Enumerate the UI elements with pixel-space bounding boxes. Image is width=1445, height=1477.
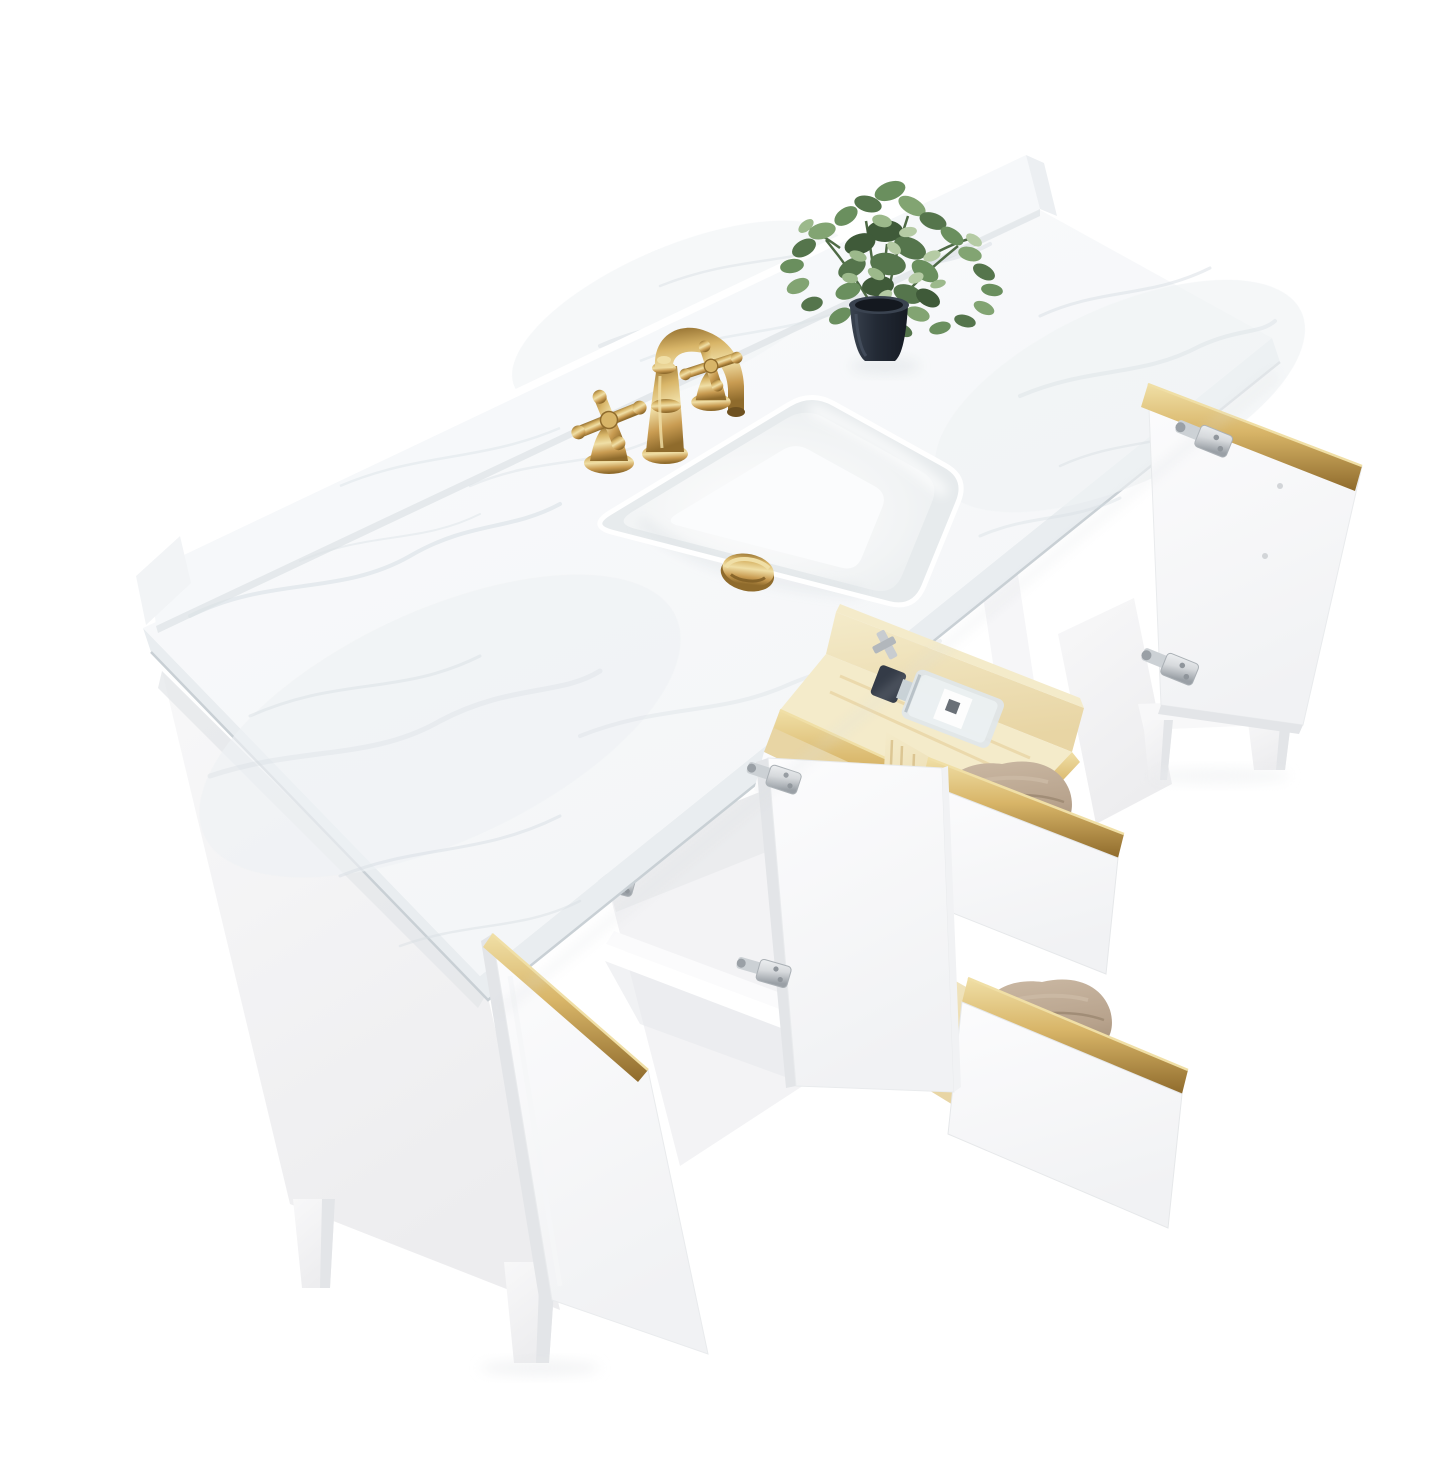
door-right [1137,384,1362,734]
vanity-illustration [40,16,1445,1461]
vanity-product-photo: White 60-inch bathroom vanity viewed fro… [40,16,1445,1461]
door-middle-face [768,758,954,1092]
leg-back-left [293,1199,335,1288]
